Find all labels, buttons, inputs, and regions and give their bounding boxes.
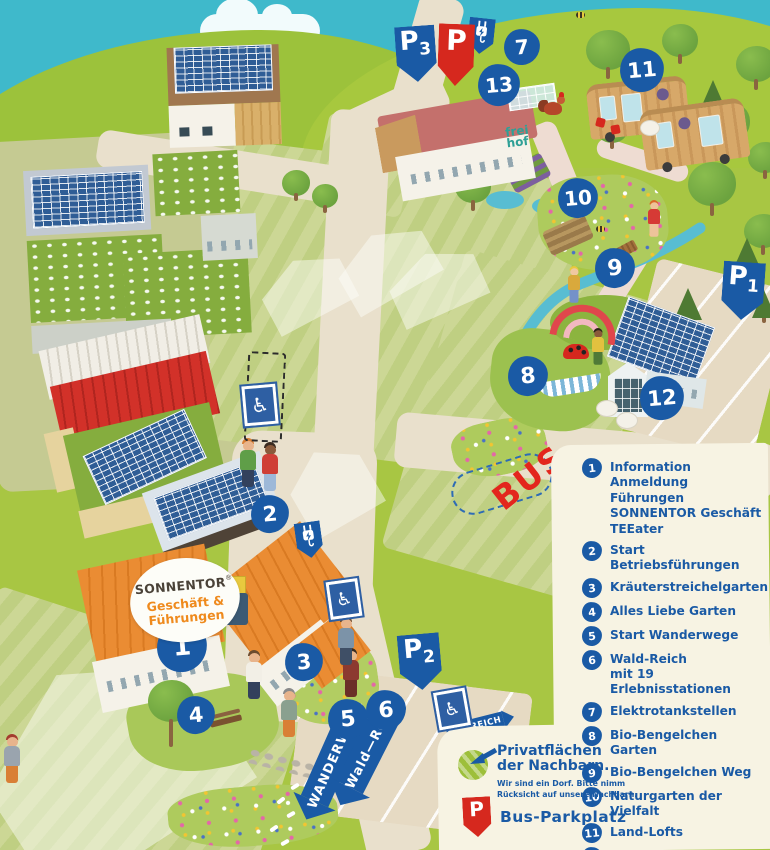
roof [23, 165, 151, 236]
parasol [616, 412, 638, 429]
legend-item: 3Kräuterstreichelgarten [582, 578, 764, 598]
legend-item-label: Bio-Bengelchen Weg [610, 763, 751, 780]
legend-item-label: Start Betriebsführungen [610, 541, 764, 574]
roof [166, 44, 280, 106]
solar-panels [30, 171, 145, 229]
parking-letter: P [399, 26, 420, 57]
solar-panels [173, 44, 273, 93]
freihof-sign: frei hof [505, 125, 531, 150]
badge-subtitle: Geschäft & Führungen [146, 593, 226, 628]
person-illustration [246, 650, 262, 699]
parasol [596, 400, 618, 417]
legend-item-label: Information Anmeldung Führungen SONNENTO… [610, 458, 764, 537]
parking-index: 2 [422, 647, 436, 668]
legend-item-label: Bio-Bengelchen Garten [610, 726, 764, 759]
parasol [640, 120, 660, 136]
person-illustration [262, 442, 278, 491]
legend-item-label: Kräuterstreichelgarten [610, 578, 768, 595]
private-area-icon [458, 750, 488, 780]
window [179, 127, 189, 136]
legend-item-number: 12 [581, 846, 603, 850]
bee-icon [596, 226, 605, 232]
legend-item-number: 5 [581, 625, 603, 647]
parking-letter: P [728, 261, 749, 292]
bus-parking-label: Bus-Parkplatz [500, 808, 626, 826]
child-illustration [568, 266, 580, 303]
window [202, 126, 212, 135]
building-production-hall [166, 38, 281, 142]
wheelchair-icon: ♿ [433, 688, 471, 731]
legend-item-number: 7 [581, 701, 603, 723]
registered-mark: ® [225, 573, 233, 582]
wall-wood [234, 102, 281, 146]
legend-item: 11Land-Lofts [582, 823, 764, 843]
wheelchair-icon: ♿ [326, 578, 363, 620]
legend-item: 2Start Betriebsführungen [582, 541, 764, 574]
legend-item-label: Elektrotankstellen [610, 702, 737, 719]
walls [169, 102, 282, 148]
legend-item: 7Elektrotankstellen [582, 702, 764, 722]
private-areas-subtext: Wir sind ein Dorf. Bitte nimm Rücksicht … [497, 779, 637, 800]
parking-letter: P [402, 634, 424, 666]
legend-item: 5Start Wanderwege [582, 626, 764, 646]
parking-index: 3 [419, 39, 432, 60]
person-illustration [281, 688, 297, 737]
child-illustration [648, 200, 660, 237]
child-illustration [592, 328, 604, 365]
legend-item-label: Start Wanderwege [610, 626, 738, 643]
legend-item-number: 3 [581, 577, 603, 599]
wall [169, 104, 236, 148]
bee-icon [576, 12, 585, 18]
ladybug-illustration [563, 344, 589, 359]
sonnentor-site-map: frei hof [0, 0, 770, 850]
rooster-comb [559, 92, 564, 97]
green-roof [152, 150, 240, 216]
parking-letter: P [469, 797, 485, 822]
private-areas-title: Privatflächen der Nachbarn. [497, 744, 609, 774]
windows [410, 155, 522, 184]
pond [486, 191, 524, 209]
legend-item-label: Wald-Reich mit 19 Erlebnisstationen [610, 650, 764, 698]
person-illustration [240, 438, 256, 487]
parking-letter: P [446, 24, 468, 58]
arrow-into-circle-icon [468, 746, 498, 768]
rooster-head [557, 96, 565, 104]
legend-item-number: 6 [581, 649, 603, 671]
office [201, 213, 258, 261]
legend-item: 6Wald-Reich mit 19 Erlebnisstationen [582, 650, 764, 698]
person-illustration [4, 734, 20, 783]
parking-index: 1 [746, 276, 759, 297]
glass-front [614, 378, 642, 412]
red-chair [610, 124, 620, 134]
wheelchair-icon: ♿ [241, 384, 278, 427]
window [599, 95, 617, 121]
legend-item-label: Alles Liebe Garten [610, 602, 736, 619]
person-illustration [338, 616, 354, 665]
legend-item-number: 1 [581, 457, 603, 479]
round-window [678, 117, 692, 131]
window [698, 114, 724, 147]
legend-item: 1Information Anmeldung Führungen SONNENT… [582, 458, 764, 537]
legend-item-number: 4 [581, 601, 603, 623]
windows [207, 239, 252, 251]
legend-item-number: 2 [581, 540, 603, 562]
legend-item: 4Alles Liebe Garten [582, 602, 764, 622]
round-window [656, 88, 669, 101]
